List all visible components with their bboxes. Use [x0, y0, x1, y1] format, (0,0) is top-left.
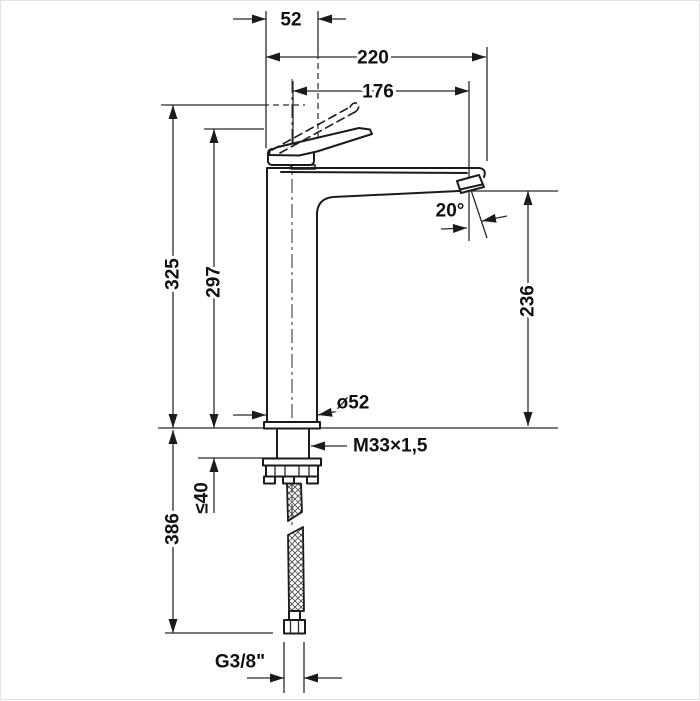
dimension-lines [173, 19, 528, 678]
spout-underside [317, 191, 459, 422]
mounting-nut [263, 459, 321, 484]
dim-label-spout-reach: 176 [362, 82, 394, 103]
hose-collar [289, 611, 300, 620]
mounting-shank [277, 429, 309, 459]
dim-label-body-diameter: ø52 [337, 393, 370, 414]
faucet-outline [263, 79, 485, 634]
dim-label-spray-angle: 20° [436, 201, 465, 222]
dim-label-total-height: 325 [163, 258, 184, 290]
dim-label-handle-height: 297 [204, 266, 225, 298]
dim-label-mounting-thread: M33×1,5 [353, 436, 428, 457]
dimension-labels: 52 220 176 325 297 236 20° ø52 M33×1,5 ≤… [163, 10, 539, 673]
technical-drawing-canvas: 52 220 176 325 297 236 20° ø52 M33×1,5 ≤… [1, 1, 700, 701]
dim-label-max-mounting-thickness: ≤40 [192, 482, 213, 514]
angle-reference-line [470, 187, 487, 238]
spout-top-inner-edge [281, 172, 467, 173]
dim-label-total-depth: 220 [357, 48, 389, 69]
faucet-technical-drawing: 52 220 176 325 297 236 20° ø52 M33×1,5 ≤… [0, 0, 700, 700]
extension-lines [158, 11, 558, 693]
hose-end-nut [284, 620, 305, 634]
dim-label-outlet-height: 236 [518, 285, 539, 317]
dim-label-supply-connection: G3/8" [215, 652, 265, 673]
aerator [457, 175, 484, 193]
supply-hose [284, 484, 305, 634]
dim-label-hose-length: 386 [163, 513, 184, 545]
dim-label-spout-top-width: 52 [280, 10, 301, 31]
